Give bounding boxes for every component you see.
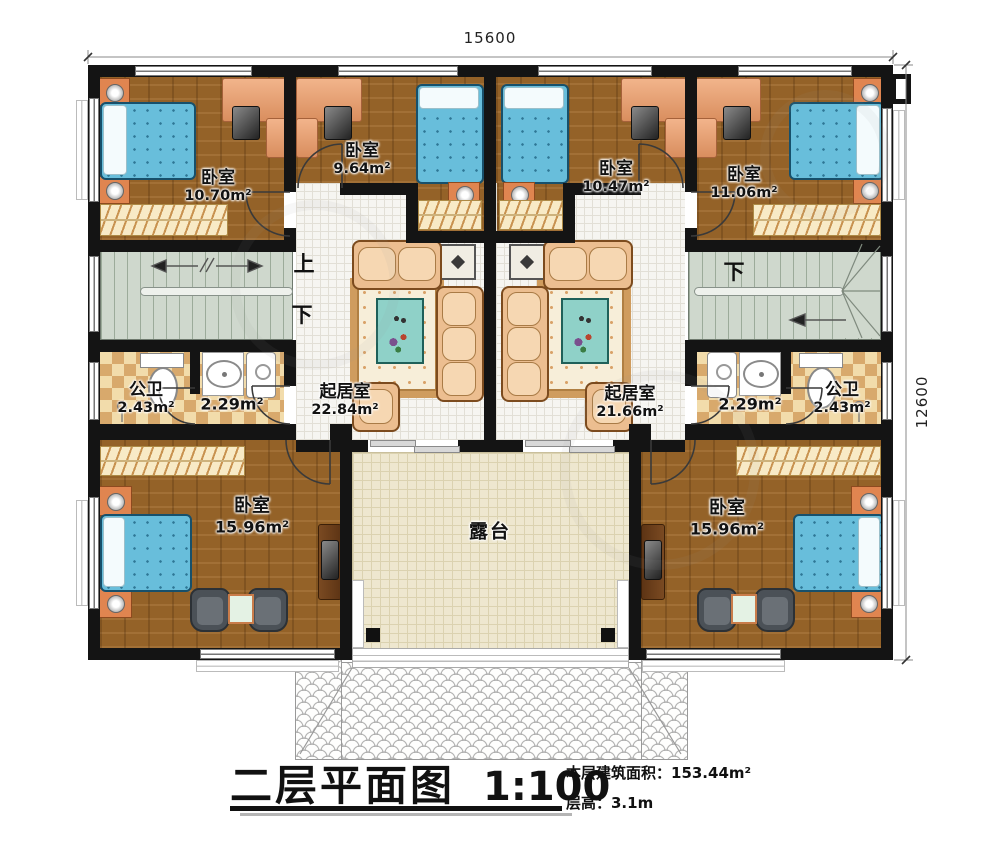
flue-notch	[891, 74, 911, 104]
wardrobe	[418, 200, 482, 230]
wall-segment	[685, 340, 697, 386]
room-label-wash-left: 2.29m²	[200, 394, 263, 413]
room-label-bath-right: 公卫2.43m²	[813, 380, 870, 418]
sofa-cushion	[442, 327, 476, 361]
sofa	[352, 240, 442, 290]
room-label-bedroom-tr: 卧室11.06m²	[710, 165, 777, 203]
wall-segment	[458, 440, 523, 452]
end-table	[509, 244, 545, 280]
washing-machine	[246, 352, 276, 398]
wall-segment	[695, 424, 893, 440]
sofa-cushion	[507, 292, 541, 326]
window-sill	[196, 660, 339, 672]
toilet-tank	[799, 353, 843, 368]
room-label-living-right: 起居室21.66m²	[596, 384, 663, 422]
sofa	[543, 240, 633, 290]
title-underline-shadow	[240, 813, 572, 816]
sofa-cushion	[442, 362, 476, 396]
sofa	[501, 286, 549, 402]
wall-segment	[685, 340, 893, 352]
chair	[248, 588, 288, 632]
wall-segment	[629, 428, 641, 660]
window	[882, 362, 892, 420]
window-sill	[76, 500, 88, 606]
computer-monitor	[232, 106, 260, 140]
computer-monitor	[321, 540, 339, 580]
desk-return	[296, 118, 318, 158]
wall-segment	[406, 231, 496, 243]
wardrobe	[736, 446, 881, 476]
window	[882, 108, 892, 202]
window	[738, 66, 852, 76]
wall-segment	[685, 65, 697, 192]
terrace-step	[352, 648, 629, 668]
room-label-living-left: 起居室22.84m²	[311, 382, 378, 420]
info-floor-area: 本层建筑面积：153.44m²	[566, 762, 751, 783]
wall-segment	[781, 352, 791, 394]
chair	[190, 588, 230, 632]
desk-return	[695, 118, 717, 158]
room-label-terrace: 露台	[469, 521, 511, 544]
sofa-cushion	[358, 247, 396, 281]
computer-monitor	[631, 106, 659, 140]
terrace-pilaster	[352, 580, 364, 648]
sofa-cushion	[442, 292, 476, 326]
wall-segment	[284, 65, 296, 192]
stair-rail	[140, 287, 293, 296]
wall-segment	[88, 340, 296, 352]
room-label-bedroom-tml: 卧室9.64m²	[333, 141, 390, 179]
toilet-tank	[140, 353, 184, 368]
window	[89, 362, 99, 420]
wall-segment	[190, 352, 200, 394]
window	[646, 649, 781, 659]
terrace-post	[366, 628, 380, 642]
nightstand	[98, 486, 132, 516]
sink-basin	[743, 360, 779, 388]
info-floor-height: 层高：3.1m	[566, 792, 653, 813]
wardrobe	[499, 200, 563, 230]
floor-terrace	[352, 452, 631, 650]
wardrobe	[100, 446, 245, 476]
bed-pillows	[856, 105, 880, 175]
end-table	[440, 244, 476, 280]
sliding-door	[569, 446, 615, 453]
dimension-height: 12600	[913, 376, 931, 429]
sliding-door	[370, 440, 416, 447]
window	[89, 256, 99, 332]
sofa-cushion	[398, 247, 436, 281]
window-sill	[893, 110, 905, 200]
window	[200, 649, 335, 659]
window	[89, 497, 99, 609]
wardrobe	[100, 204, 228, 236]
bed-pillows	[419, 87, 479, 109]
sink-basin	[206, 360, 242, 388]
coffee-table	[561, 298, 609, 364]
window-sill	[642, 660, 785, 672]
nightstand	[851, 588, 885, 618]
wall-segment	[284, 340, 296, 386]
nightstand	[98, 588, 132, 618]
wall-segment	[296, 440, 368, 452]
staircase-right-winder	[838, 244, 880, 338]
dimension-width: 15600	[464, 29, 517, 47]
stair-label-up: 上	[294, 248, 315, 278]
room-label-bath-left: 公卫2.43m²	[117, 380, 174, 418]
sofa-cushion	[507, 362, 541, 396]
wardrobe	[753, 204, 881, 236]
room-label-bedroom-tmr: 卧室10.47m²	[582, 159, 649, 197]
room-label-bedroom-bl: 卧室15.96m²	[215, 496, 289, 537]
room-label-bedroom-br: 卧室15.96m²	[690, 498, 764, 539]
wall-segment	[88, 240, 288, 252]
side-table	[731, 594, 757, 624]
bed-pillows	[103, 105, 127, 175]
wall-segment	[613, 440, 685, 452]
chair	[755, 588, 795, 632]
wall-segment	[88, 424, 286, 440]
wall-segment	[484, 231, 575, 243]
wall-segment	[340, 428, 352, 660]
washing-machine	[707, 352, 737, 398]
window-sill	[893, 500, 905, 606]
drawing-title: 二层平面图	[230, 752, 455, 813]
desk-return	[665, 118, 687, 158]
floor-plan-canvas: 卧室10.70m² 卧室9.64m² 卧室10.47m² 卧室11.06m² 公…	[0, 0, 1000, 849]
sofa-cushion	[589, 247, 627, 281]
window	[882, 497, 892, 609]
window	[338, 66, 458, 76]
window	[135, 66, 252, 76]
bed-pillows	[504, 87, 564, 109]
stair-rail	[694, 287, 844, 296]
sofa-cushion	[507, 327, 541, 361]
bed-pillows	[858, 517, 880, 587]
wall-segment	[484, 65, 496, 452]
wall-segment	[693, 240, 893, 252]
nightstand	[98, 176, 130, 204]
window	[89, 98, 99, 202]
window-sill	[76, 100, 88, 200]
stair-label-down-left: 下	[292, 299, 313, 329]
coffee-table	[376, 298, 424, 364]
computer-monitor	[644, 540, 662, 580]
stair-label-down-right: 下	[724, 256, 745, 286]
window	[538, 66, 652, 76]
window	[882, 256, 892, 332]
title-block: 二层平面图 1:100	[230, 752, 610, 813]
room-label-bedroom-tl: 卧室10.70m²	[184, 168, 251, 206]
terrace-pilaster	[617, 580, 629, 648]
sofa	[436, 286, 484, 402]
side-table	[228, 594, 254, 624]
sofa-cushion	[549, 247, 587, 281]
sliding-door	[525, 440, 571, 447]
bed-pillows	[103, 517, 125, 587]
title-underline	[230, 806, 562, 811]
room-label-wash-right: 2.29m²	[718, 394, 781, 413]
computer-monitor	[723, 106, 751, 140]
nightstand	[851, 486, 885, 516]
computer-monitor	[324, 106, 352, 140]
terrace-post	[601, 628, 615, 642]
porch-roof-apron	[295, 662, 688, 760]
sliding-door	[414, 446, 460, 453]
